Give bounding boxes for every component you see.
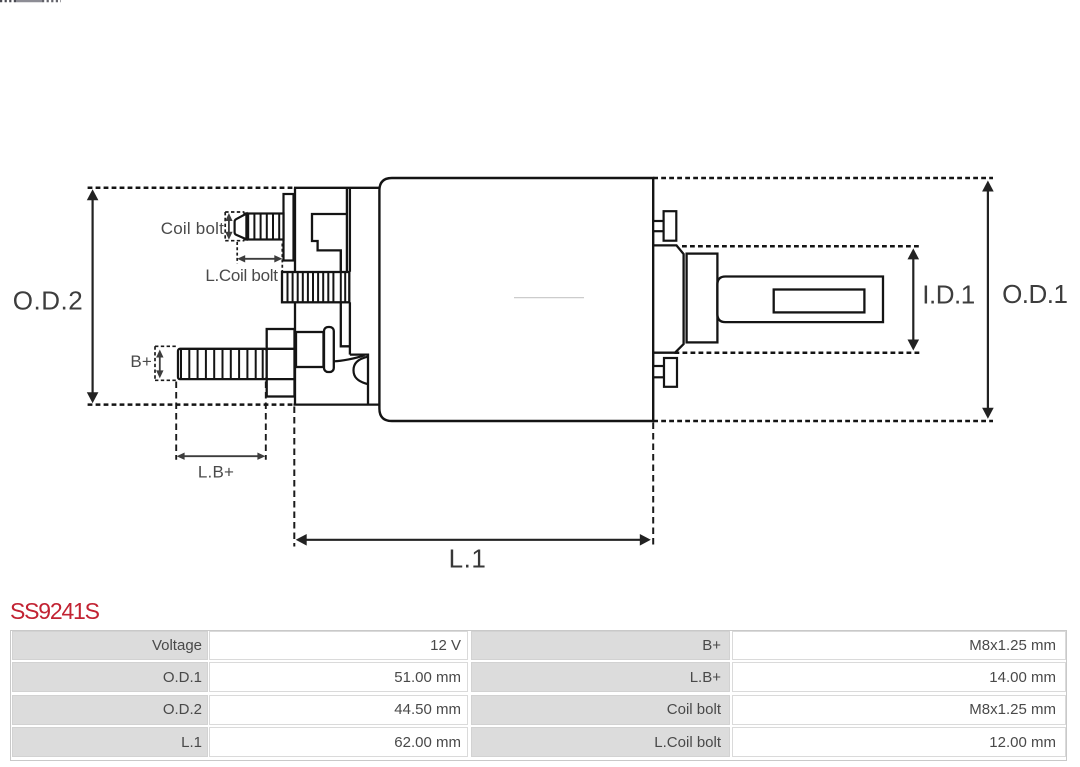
svg-text:O.D.2: O.D.2 xyxy=(13,286,83,316)
svg-text:Coil bolt: Coil bolt xyxy=(161,219,224,238)
svg-text:O.D.1: O.D.1 xyxy=(1002,279,1067,309)
svg-text:L.1: L.1 xyxy=(449,544,487,574)
svg-text:L.Coil bolt: L.Coil bolt xyxy=(205,266,278,285)
svg-text:L.B+: L.B+ xyxy=(198,463,234,482)
svg-text:B+: B+ xyxy=(130,352,152,371)
svg-text:I.D.1: I.D.1 xyxy=(922,280,974,310)
